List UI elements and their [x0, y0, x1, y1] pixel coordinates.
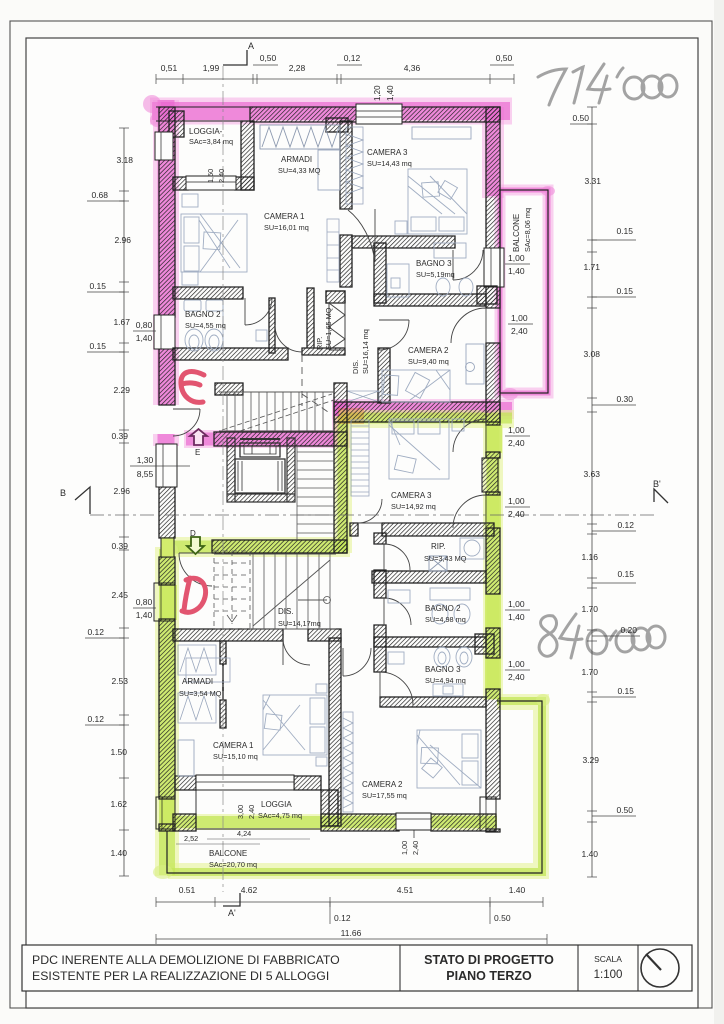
svg-text:2,40: 2,40	[511, 326, 528, 336]
svg-text:4.51: 4.51	[397, 885, 414, 895]
svg-text:BALCONE: BALCONE	[512, 214, 521, 252]
svg-text:1.67: 1.67	[113, 317, 130, 327]
svg-text:1,30: 1,30	[137, 455, 154, 465]
svg-text:1,40: 1,40	[508, 266, 525, 276]
svg-text:B: B	[60, 488, 66, 498]
svg-text:0,50: 0,50	[260, 53, 277, 63]
svg-text:SU=4,55 mq: SU=4,55 mq	[185, 321, 226, 330]
svg-text:4,36: 4,36	[404, 63, 421, 73]
svg-text:2,40: 2,40	[411, 841, 420, 855]
svg-text:0.39: 0.39	[111, 431, 128, 441]
svg-text:2.29: 2.29	[113, 385, 130, 395]
svg-text:SU=14,43 mq: SU=14,43 mq	[367, 159, 412, 168]
svg-text:E: E	[195, 448, 200, 457]
svg-text:1,00: 1,00	[508, 425, 525, 435]
svg-text:0.51: 0.51	[179, 885, 196, 895]
svg-text:0,80: 0,80	[136, 597, 153, 607]
svg-text:STATO DI PROGETTO: STATO DI PROGETTO	[424, 953, 554, 967]
svg-text:0,80: 0,80	[136, 320, 153, 330]
svg-text:SAc=8,06 mq: SAc=8,06 mq	[523, 208, 532, 252]
svg-text:1,99: 1,99	[203, 63, 220, 73]
svg-text:1,40: 1,40	[136, 610, 153, 620]
svg-text:SU=1,65 MQ: SU=1,65 MQ	[324, 307, 333, 350]
svg-text:0.39: 0.39	[111, 541, 128, 551]
svg-text:ARMADI: ARMADI	[281, 155, 312, 164]
svg-text:ESISTENTE PER LA REALIZZAZIONE: ESISTENTE PER LA REALIZZAZIONE DI 5 ALLO…	[32, 969, 329, 983]
svg-text:SU=16,14 mq: SU=16,14 mq	[361, 329, 370, 374]
svg-text:1,20: 1,20	[373, 85, 382, 101]
svg-text:SCALA: SCALA	[594, 954, 622, 964]
svg-text:0,51: 0,51	[161, 63, 178, 73]
svg-text:3,00: 3,00	[236, 805, 245, 819]
svg-text:4.62: 4.62	[241, 885, 258, 895]
svg-text:3.08: 3.08	[583, 349, 600, 359]
svg-text:SAc=4,75 mq: SAc=4,75 mq	[258, 811, 302, 820]
svg-text:8,55: 8,55	[137, 469, 154, 479]
svg-text:A': A'	[228, 908, 236, 918]
svg-text:1.40: 1.40	[581, 849, 598, 859]
svg-text:SU=4,33 MQ: SU=4,33 MQ	[278, 166, 321, 175]
svg-text:1.62: 1.62	[110, 799, 127, 809]
svg-text:1,00: 1,00	[508, 599, 525, 609]
svg-text:0.15: 0.15	[617, 686, 634, 696]
svg-text:2,40: 2,40	[217, 169, 226, 183]
svg-text:0,12: 0,12	[344, 53, 361, 63]
svg-text:PIANO TERZO: PIANO TERZO	[446, 969, 532, 983]
svg-text:1.70: 1.70	[581, 604, 598, 614]
svg-text:1:100: 1:100	[594, 969, 623, 981]
svg-text:1,00: 1,00	[508, 659, 525, 669]
svg-text:0.12: 0.12	[87, 627, 104, 637]
svg-text:DIS.: DIS.	[351, 360, 360, 374]
svg-text:D: D	[190, 529, 196, 538]
svg-text:BAGNO 2: BAGNO 2	[425, 604, 461, 613]
svg-text:SU=14,92 mq: SU=14,92 mq	[391, 502, 436, 511]
svg-text:CAMERA 3: CAMERA 3	[367, 148, 408, 157]
svg-text:CAMERA 3: CAMERA 3	[391, 491, 432, 500]
svg-text:0.20: 0.20	[620, 625, 637, 635]
svg-text:SU=16,01 mq: SU=16,01 mq	[264, 223, 309, 232]
svg-text:A: A	[248, 41, 254, 51]
svg-text:SAc=3,84 mq: SAc=3,84 mq	[189, 137, 233, 146]
svg-text:0.50: 0.50	[616, 805, 633, 815]
svg-text:3.29: 3.29	[582, 755, 599, 765]
svg-text:DIS.: DIS.	[278, 607, 294, 616]
svg-text:0.12: 0.12	[87, 714, 104, 724]
svg-text:SU=5,19mq: SU=5,19mq	[416, 270, 455, 279]
svg-text:SU=3,54 MQ: SU=3,54 MQ	[179, 689, 222, 698]
svg-text:CAMERA 2: CAMERA 2	[362, 780, 403, 789]
svg-text:ARMADI: ARMADI	[182, 677, 213, 686]
svg-text:SU=4,94 mq: SU=4,94 mq	[425, 676, 466, 685]
svg-text:PDC INERENTE ALLA DEMOLIZIONE: PDC INERENTE ALLA DEMOLIZIONE DI FABBRIC…	[32, 953, 340, 967]
svg-text:BALCONE: BALCONE	[209, 849, 247, 858]
svg-text:2.45: 2.45	[111, 590, 128, 600]
svg-text:1,40: 1,40	[386, 85, 395, 101]
svg-text:LOGGIA: LOGGIA	[261, 800, 292, 809]
svg-text:CAMERA 1: CAMERA 1	[213, 741, 254, 750]
svg-text:SU=4,98 mq: SU=4,98 mq	[425, 615, 466, 624]
svg-text:0.30: 0.30	[616, 394, 633, 404]
svg-text:1,50: 1,50	[206, 169, 215, 183]
svg-text:1,40: 1,40	[136, 333, 153, 343]
svg-text:BAGNO 2: BAGNO 2	[185, 310, 221, 319]
svg-text:0.15: 0.15	[616, 226, 633, 236]
svg-text:0.68: 0.68	[91, 190, 108, 200]
svg-text:0.12: 0.12	[617, 520, 634, 530]
svg-text:3.63: 3.63	[583, 469, 600, 479]
svg-text:2.53: 2.53	[111, 676, 128, 686]
svg-text:BAGNO 3: BAGNO 3	[425, 665, 461, 674]
svg-text:B': B'	[653, 479, 661, 489]
svg-text:CAMERA 1: CAMERA 1	[264, 212, 305, 221]
svg-text:SU=14,17mq: SU=14,17mq	[278, 619, 321, 628]
svg-text:SU=17,55 mq: SU=17,55 mq	[362, 791, 407, 800]
svg-text:SU=3,43 MQ: SU=3,43 MQ	[424, 554, 467, 563]
svg-text:1,00: 1,00	[511, 313, 528, 323]
svg-text:0.12: 0.12	[334, 913, 351, 923]
svg-text:0.15: 0.15	[89, 281, 106, 291]
svg-text:1.40: 1.40	[110, 848, 127, 858]
svg-text:1.70: 1.70	[581, 667, 598, 677]
svg-text:1.40: 1.40	[509, 885, 526, 895]
svg-text:2,40: 2,40	[508, 509, 525, 519]
svg-text:2,40: 2,40	[508, 672, 525, 682]
svg-text:0.15: 0.15	[89, 341, 106, 351]
svg-text:1,00: 1,00	[400, 841, 409, 855]
svg-text:SU=9,40 mq: SU=9,40 mq	[408, 357, 449, 366]
svg-text:2,40: 2,40	[508, 438, 525, 448]
svg-text:1.71: 1.71	[583, 262, 600, 272]
svg-text:0.50: 0.50	[572, 113, 589, 123]
svg-text:0,50: 0,50	[496, 53, 513, 63]
svg-text:1.50: 1.50	[110, 747, 127, 757]
svg-text:3.18: 3.18	[116, 155, 133, 165]
svg-text:BAGNO 3: BAGNO 3	[416, 259, 452, 268]
svg-text:2.96: 2.96	[113, 486, 130, 496]
svg-text:RIP.: RIP.	[315, 337, 324, 350]
svg-text:2,28: 2,28	[289, 63, 306, 73]
svg-text:RIP.: RIP.	[431, 542, 446, 551]
svg-text:SAc=20,70 mq: SAc=20,70 mq	[209, 860, 257, 869]
svg-text:1,40: 1,40	[508, 612, 525, 622]
svg-text:2.96: 2.96	[114, 235, 131, 245]
svg-text:CAMERA 2: CAMERA 2	[408, 346, 449, 355]
svg-text:0.50: 0.50	[494, 913, 511, 923]
svg-text:1,00: 1,00	[508, 496, 525, 506]
svg-text:1.16: 1.16	[581, 552, 598, 562]
svg-text:SU=15,10 mq: SU=15,10 mq	[213, 752, 258, 761]
svg-text:2,52: 2,52	[184, 834, 198, 843]
svg-text:0.15: 0.15	[617, 569, 634, 579]
svg-text:2,40: 2,40	[247, 805, 256, 819]
svg-text:3.31: 3.31	[584, 176, 601, 186]
svg-text:4,24: 4,24	[237, 829, 251, 838]
svg-text:11.66: 11.66	[341, 928, 362, 938]
svg-text:0.15: 0.15	[616, 286, 633, 296]
svg-text:LOGGIA-: LOGGIA-	[189, 127, 223, 136]
svg-text:1,00: 1,00	[508, 253, 525, 263]
